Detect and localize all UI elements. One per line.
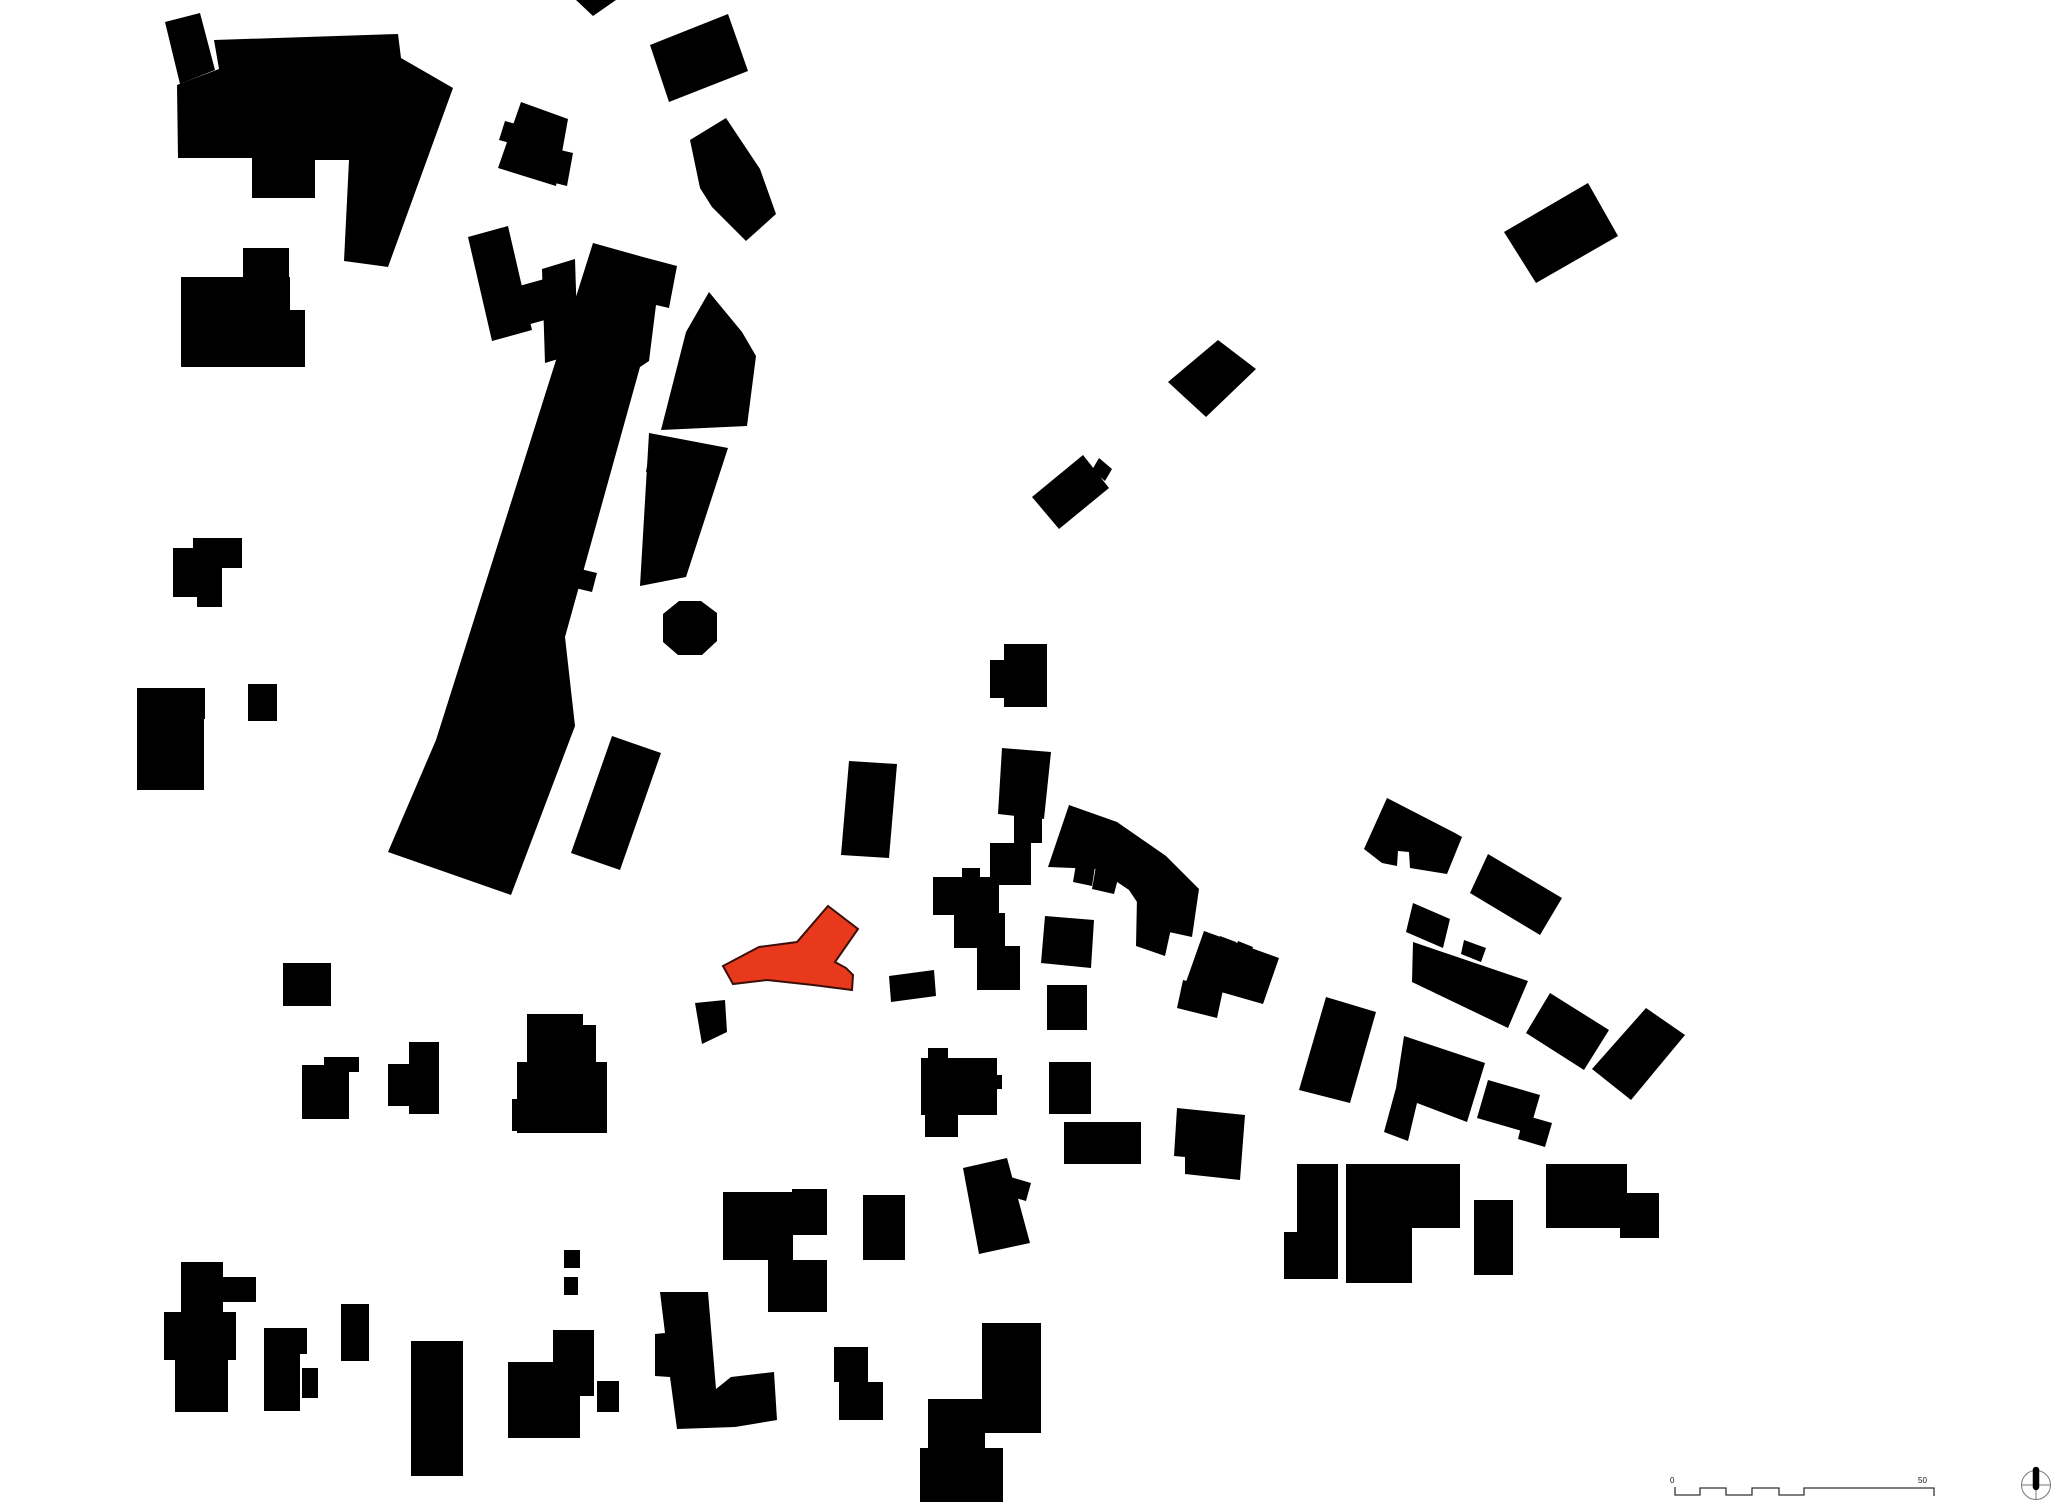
- svg-text:0: 0: [1670, 1476, 1675, 1485]
- svg-text:50: 50: [1918, 1476, 1927, 1485]
